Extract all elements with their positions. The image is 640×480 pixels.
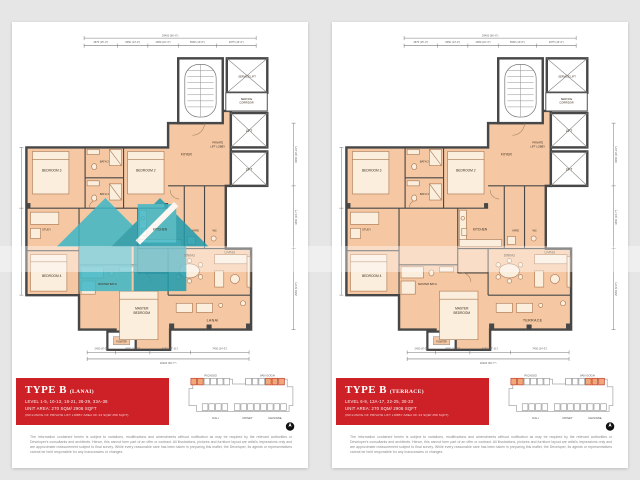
room-label-lift2: LIFT: [246, 168, 253, 172]
dim-top-seg: 4950 (16'-3"): [156, 40, 171, 44]
dim-top-seg: 4875 (16'-0"): [93, 40, 108, 44]
room-label-master-bedroom-2: BEDROOM: [453, 311, 470, 315]
dim-top-seg: 4950 (16'-3"): [476, 40, 491, 44]
room-label-bath2: BATH 2: [100, 160, 110, 164]
room-label-service-lift: SERVICE LIFT: [238, 75, 256, 79]
site-key-plan: PICASSO VAN GOGH DALI MONET CEZANNE N: [176, 366, 304, 434]
room-label-bath3: BATH 3: [420, 192, 430, 196]
room-label-outdoor: LANAI: [207, 318, 219, 322]
unit-type-title: TYPE B: [25, 384, 67, 396]
disclaimer-text: The information contained herein is subj…: [30, 435, 292, 455]
room-label-kitchen: KITCHEN: [153, 227, 168, 231]
dim-top-seg: 3950 (13'-0"): [445, 40, 460, 44]
dim-bottom-seg: 7450 (24'-5"): [212, 346, 227, 350]
room-label-master-bedroom-2: BEDROOM: [133, 311, 150, 315]
room-label-bedroom2: BEDROOM 2: [136, 169, 156, 173]
unit-area-note: (INCLUSIVE OF PRIVATE LIFT LOBBY AREA OF…: [345, 413, 480, 417]
tower-label-monet: MONET: [562, 416, 572, 420]
room-label-corridor-2: CORRIDOR: [239, 100, 253, 104]
room-label-wc: WC: [532, 228, 536, 232]
room-label-lobby-2: LIFT LOBBY: [210, 144, 225, 148]
room-label-study: STUDY: [42, 227, 51, 231]
room-label-bath2: BATH 2: [420, 160, 430, 164]
tower-label-cezanne: CEZANNE: [268, 416, 282, 420]
room-label-master-bath: MASTER BATH: [418, 282, 437, 286]
room-label-lift1: LIFT: [566, 129, 573, 133]
dim-top-seg: 4875 (16'-0"): [413, 40, 428, 44]
room-label-lobby-1: PRIVATE: [212, 140, 223, 144]
room-label-bedroom4: BEDROOM 4: [362, 274, 382, 278]
room-label-corridor-2: CORRIDOR: [559, 100, 573, 104]
room-label-bedroom4: BEDROOM 4: [42, 274, 62, 278]
unit-type-variant: (LANAI): [70, 389, 94, 395]
tower-label-dali: DALI: [532, 416, 539, 420]
disclaimer-text: The information contained herein is subj…: [350, 435, 612, 455]
room-label-yard: YARD: [192, 228, 199, 232]
dim-top-seg: 4875 (16'-0"): [549, 40, 564, 44]
room-label-service-lift: SERVICE LIFT: [558, 75, 576, 79]
room-label-outdoor: TERRACE: [523, 318, 543, 322]
room-label-living: LIVING: [545, 251, 556, 255]
dim-top-seg: 5950 (19'-6"): [510, 40, 525, 44]
room-label-foyer: FOYER: [501, 153, 513, 157]
compass-north-label: N: [614, 425, 616, 429]
dim-right-seg: 2950 (9'-8"): [294, 282, 298, 296]
dim-top-seg: 5950 (19'-6"): [190, 40, 205, 44]
room-label-planter: PLANTER: [436, 341, 447, 344]
room-label-lobby-2: LIFT LOBBY: [530, 144, 545, 148]
dim-top-seg: 3950 (13'-0"): [125, 40, 140, 44]
unit-type-banner: TYPE B (LANAI) LEVEL 1-5, 10-13, 18-21, …: [16, 378, 169, 425]
tower-label-picasso: PICASSO: [204, 373, 217, 377]
room-label-bath3: BATH 3: [100, 192, 110, 196]
room-label-living: LIVING: [225, 251, 236, 255]
unit-area: UNIT AREA: 270 SQM/ 2906 SQFT: [25, 406, 160, 411]
room-label-lobby-1: PRIVATE: [532, 140, 543, 144]
room-label-dining: DINING: [184, 254, 196, 258]
dim-bottom-seg: 7450 (24'-5"): [532, 346, 547, 350]
dim-right-seg: 6050 (19'-10"): [614, 146, 618, 163]
room-label-master-bedroom-1: MASTER: [135, 306, 149, 310]
room-label-master-bedroom-1: MASTER: [455, 306, 469, 310]
dim-right-seg: 2950 (9'-8"): [614, 282, 618, 296]
page-type-b-terrace: BEDROOM 3 BATH 2 BATH 3 BEDROOM 2 FOYER …: [332, 22, 628, 468]
tower-label-van-gogh: VAN GOGH: [260, 373, 275, 377]
room-label-lift2: LIFT: [566, 168, 573, 172]
room-label-corridor-1: SERVICE: [241, 97, 253, 101]
unit-type-variant: (TERRACE): [390, 389, 424, 395]
room-label-master-bath: MASTER BATH: [98, 282, 117, 286]
tower-label-monet: MONET: [242, 416, 252, 420]
room-label-bedroom3: BEDROOM 3: [42, 169, 62, 173]
unit-area-note: (INCLUSIVE OF PRIVATE LIFT LOBBY AREA OF…: [25, 413, 160, 417]
tower-label-cezanne: CEZANNE: [588, 416, 602, 420]
dim-top-total: 29400 (96'-6"): [162, 34, 179, 38]
unit-type-banner: TYPE B (TERRACE) LEVEL 6-9, 13A-17, 22-2…: [336, 378, 489, 425]
room-label-yard: YARD: [512, 228, 519, 232]
dim-bottom-seg: 2450 (8'-0"): [415, 346, 429, 350]
room-label-bedroom3: BEDROOM 3: [362, 169, 382, 173]
room-label-study: STUDY: [362, 227, 371, 231]
room-label-dining: DINING: [504, 254, 516, 258]
room-label-corridor-1: SERVICE: [561, 97, 573, 101]
dim-bottom-seg: 2450 (8'-0"): [95, 346, 109, 350]
tower-label-dali: DALI: [212, 416, 219, 420]
room-label-lift1: LIFT: [246, 129, 253, 133]
dim-bottom-total: 20300 (66'-7"): [160, 361, 177, 364]
dim-top-seg: 4875 (16'-0"): [229, 40, 244, 44]
compass-north-label: N: [294, 425, 296, 429]
unit-levels: LEVEL 1-5, 10-13, 18-21, 26-29, 33A-38: [25, 399, 160, 404]
dim-bottom-seg: 5450 (17'-11"): [482, 346, 498, 350]
floor-plan-lanai: BEDROOM 3 BATH 2 BATH 3 BEDROOM 2 FOYER …: [18, 30, 302, 364]
dim-top-total: 29400 (96'-6"): [482, 34, 499, 38]
page-type-b-lanai: BEDROOM 3 BATH 2 BATH 3 BEDROOM 2 FOYER …: [12, 22, 308, 468]
dim-right-seg: 6050 (19'-10"): [294, 146, 298, 163]
site-key-plan: PICASSO VAN GOGH DALI MONET CEZANNE N: [496, 366, 624, 434]
unit-levels: LEVEL 6-9, 13A-17, 22-25, 30-33: [345, 399, 480, 404]
room-label-wc: WC: [212, 228, 216, 232]
brochure-scan: BEDROOM 3 BATH 2 BATH 3 BEDROOM 2 FOYER …: [0, 0, 640, 480]
dim-bottom-seg: 5450 (17'-11"): [162, 346, 178, 350]
dim-right-seg: 4450 (14'-7"): [614, 210, 618, 225]
dim-bottom-seg: 4950 (16'-3"): [125, 346, 140, 350]
dim-bottom-seg: 4950 (16'-3"): [445, 346, 460, 350]
dim-right-seg: 4450 (14'-7"): [294, 210, 298, 225]
dim-bottom-total: 20300 (66'-7"): [480, 361, 497, 364]
unit-area: UNIT AREA: 270 SQM/ 2906 SQFT: [345, 406, 480, 411]
unit-type-title: TYPE B: [345, 384, 387, 396]
tower-label-picasso: PICASSO: [524, 373, 537, 377]
floor-plan-terrace: BEDROOM 3 BATH 2 BATH 3 BEDROOM 2 FOYER …: [338, 30, 622, 364]
tower-label-van-gogh: VAN GOGH: [580, 373, 595, 377]
room-label-planter: PLANTER: [116, 341, 127, 344]
room-label-foyer: FOYER: [181, 153, 193, 157]
room-label-kitchen: KITCHEN: [473, 227, 488, 231]
room-label-bedroom2: BEDROOM 2: [456, 169, 476, 173]
